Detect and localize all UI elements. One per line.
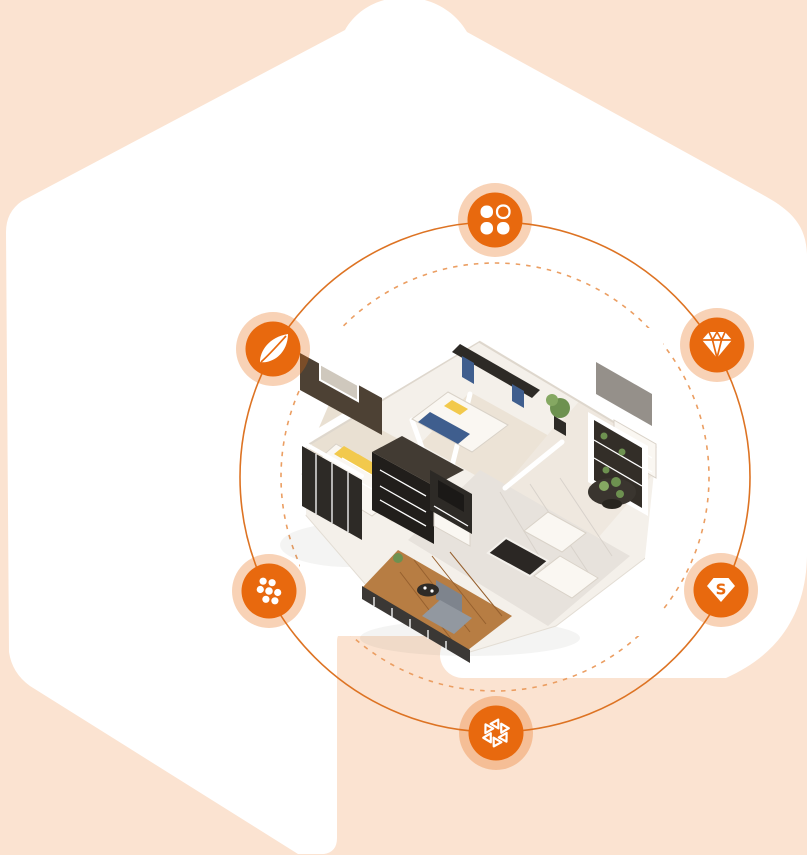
gem-letter: S: [716, 581, 727, 599]
badge-circle: [469, 706, 524, 761]
feature-badge-gem-s[interactable]: S: [684, 553, 758, 627]
feature-badge-triangles[interactable]: [459, 696, 533, 770]
feature-badge-petals[interactable]: [458, 183, 532, 257]
badge-circle: [468, 193, 523, 248]
feature-badge-diamond[interactable]: [680, 308, 754, 382]
apartment-floorplan-image: [280, 328, 663, 663]
hero-graphic: S: [0, 0, 807, 855]
feature-badge-leaf[interactable]: [236, 312, 310, 386]
feature-badge-dots[interactable]: [232, 554, 306, 628]
hero-scene: S: [0, 0, 807, 855]
